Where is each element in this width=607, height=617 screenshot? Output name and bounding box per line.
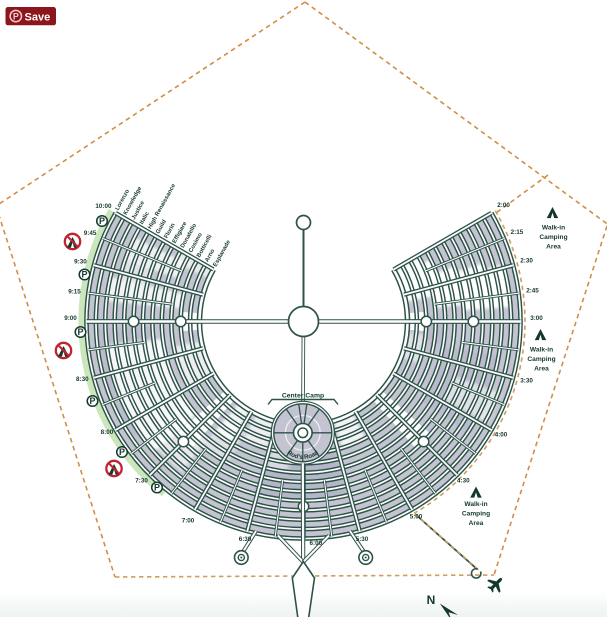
svg-text:Camping: Camping [462,511,490,518]
svg-text:2:30: 2:30 [520,258,533,265]
svg-text:10:00: 10:00 [95,203,112,210]
svg-text:Area: Area [534,366,549,373]
svg-text:P: P [154,483,160,493]
svg-text:6:00: 6:00 [310,540,323,547]
svg-text:8:00: 8:00 [101,429,114,436]
svg-text:Camping: Camping [539,234,567,241]
svg-text:N: N [427,593,436,607]
svg-text:9:30: 9:30 [74,259,87,266]
svg-text:4:30: 4:30 [457,477,470,484]
svg-text:P: P [81,270,87,280]
svg-text:9:15: 9:15 [68,288,81,295]
svg-text:3:30: 3:30 [520,377,533,384]
svg-text:P: P [119,447,125,457]
svg-text:6:30: 6:30 [239,536,252,543]
svg-text:P: P [99,216,105,226]
svg-text:2:15: 2:15 [511,229,524,236]
svg-text:Walk-in: Walk-in [464,501,487,508]
svg-text:7:30: 7:30 [135,477,148,484]
svg-text:5:00: 5:00 [410,513,423,520]
svg-text:2:45: 2:45 [526,287,539,294]
svg-text:Area: Area [469,520,484,527]
svg-text:9:45: 9:45 [84,230,97,237]
svg-text:5:30: 5:30 [356,536,369,543]
svg-text:Walk-in: Walk-in [530,347,553,354]
svg-text:Center Camp: Center Camp [282,393,324,400]
svg-text:4:00: 4:00 [495,432,508,439]
svg-text:P: P [89,396,95,406]
svg-text:3:00: 3:00 [530,315,543,322]
svg-text:Area: Area [546,244,561,251]
svg-text:P: P [77,327,83,337]
svg-text:Save: Save [25,11,51,23]
svg-text:2:00: 2:00 [497,202,510,209]
svg-text:P: P [13,11,19,21]
svg-text:9:00: 9:00 [64,315,77,322]
svg-text:8:30: 8:30 [76,376,89,383]
svg-text:7:00: 7:00 [182,518,195,525]
svg-text:Camping: Camping [527,356,555,363]
svg-text:Walk-in: Walk-in [542,225,565,232]
